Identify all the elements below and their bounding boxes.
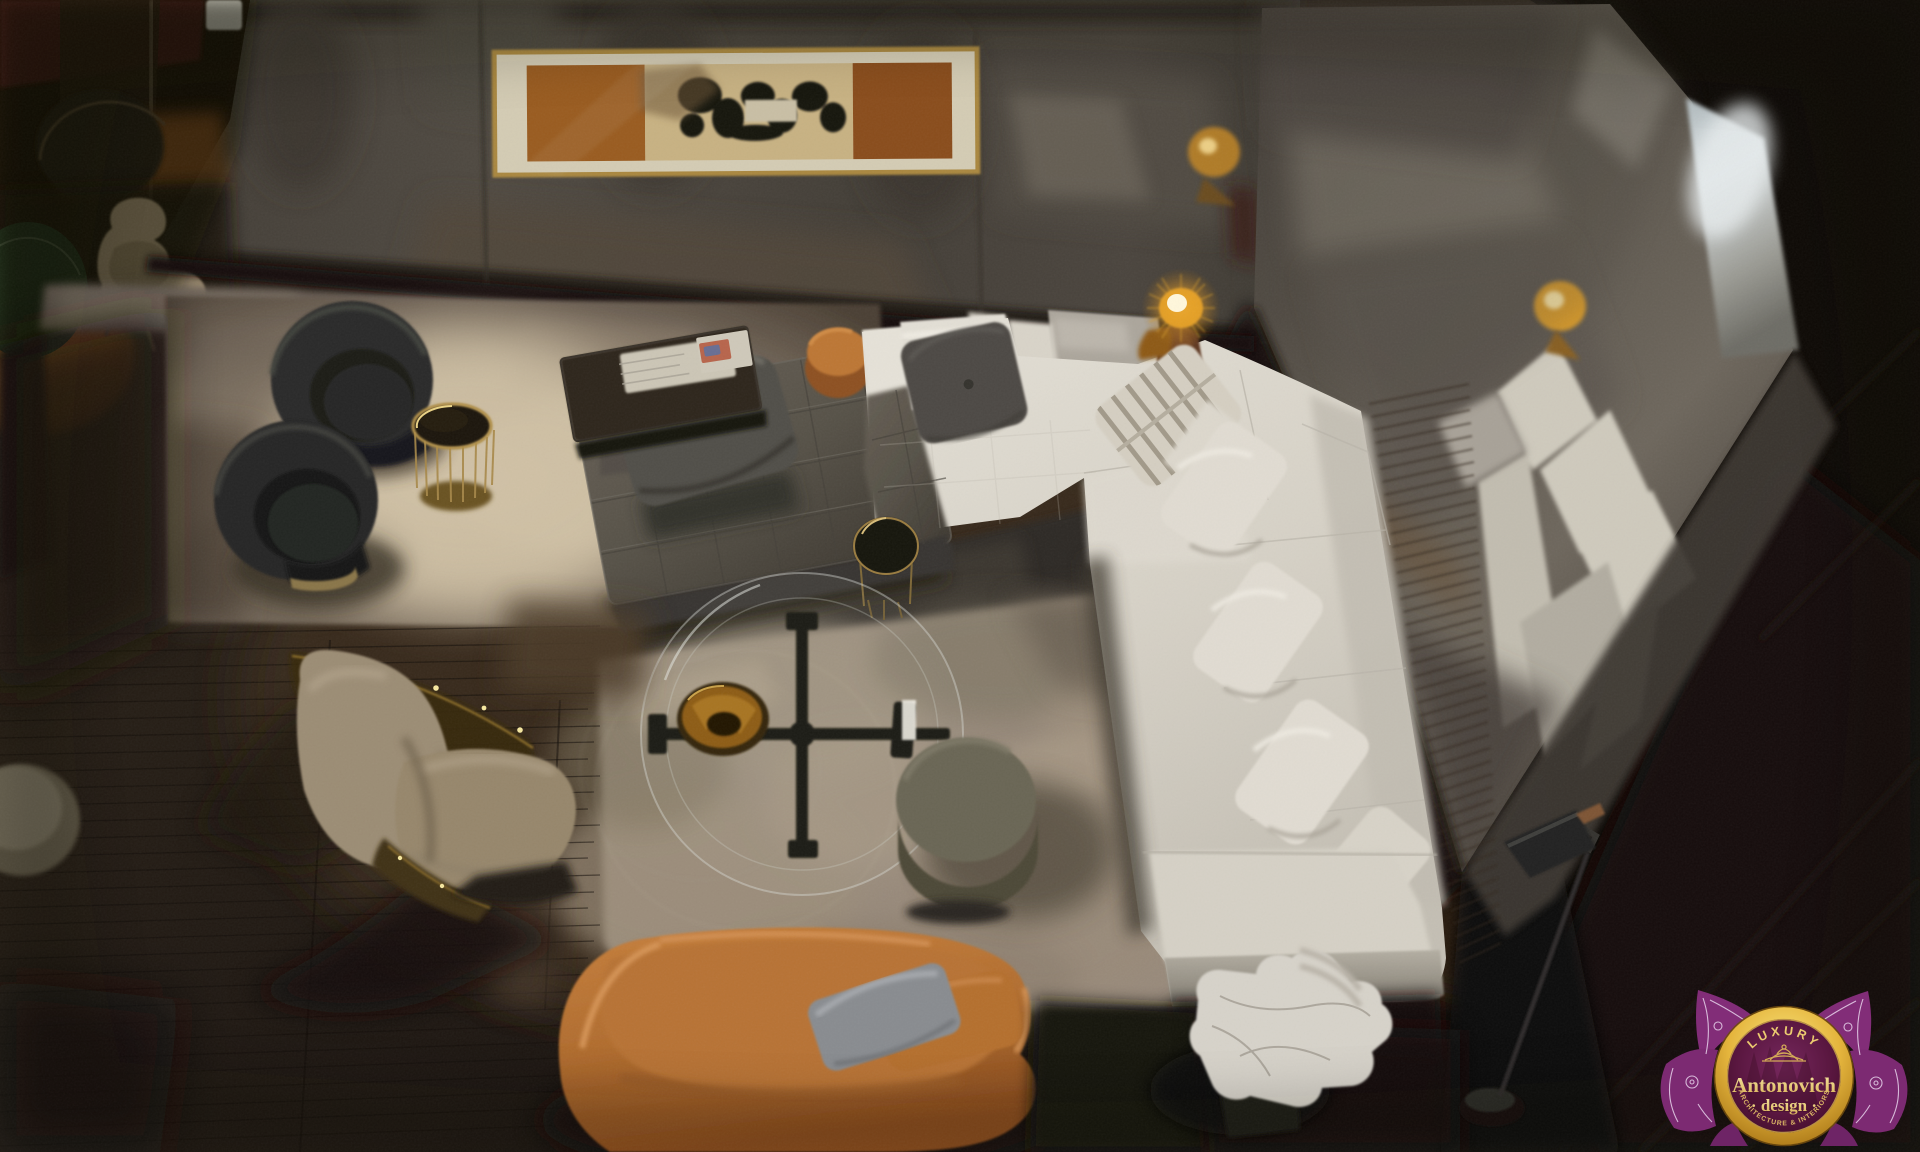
svg-text:· design ·: · design · — [1751, 1096, 1817, 1115]
svg-text:Antonovich: Antonovich — [1732, 1073, 1836, 1097]
